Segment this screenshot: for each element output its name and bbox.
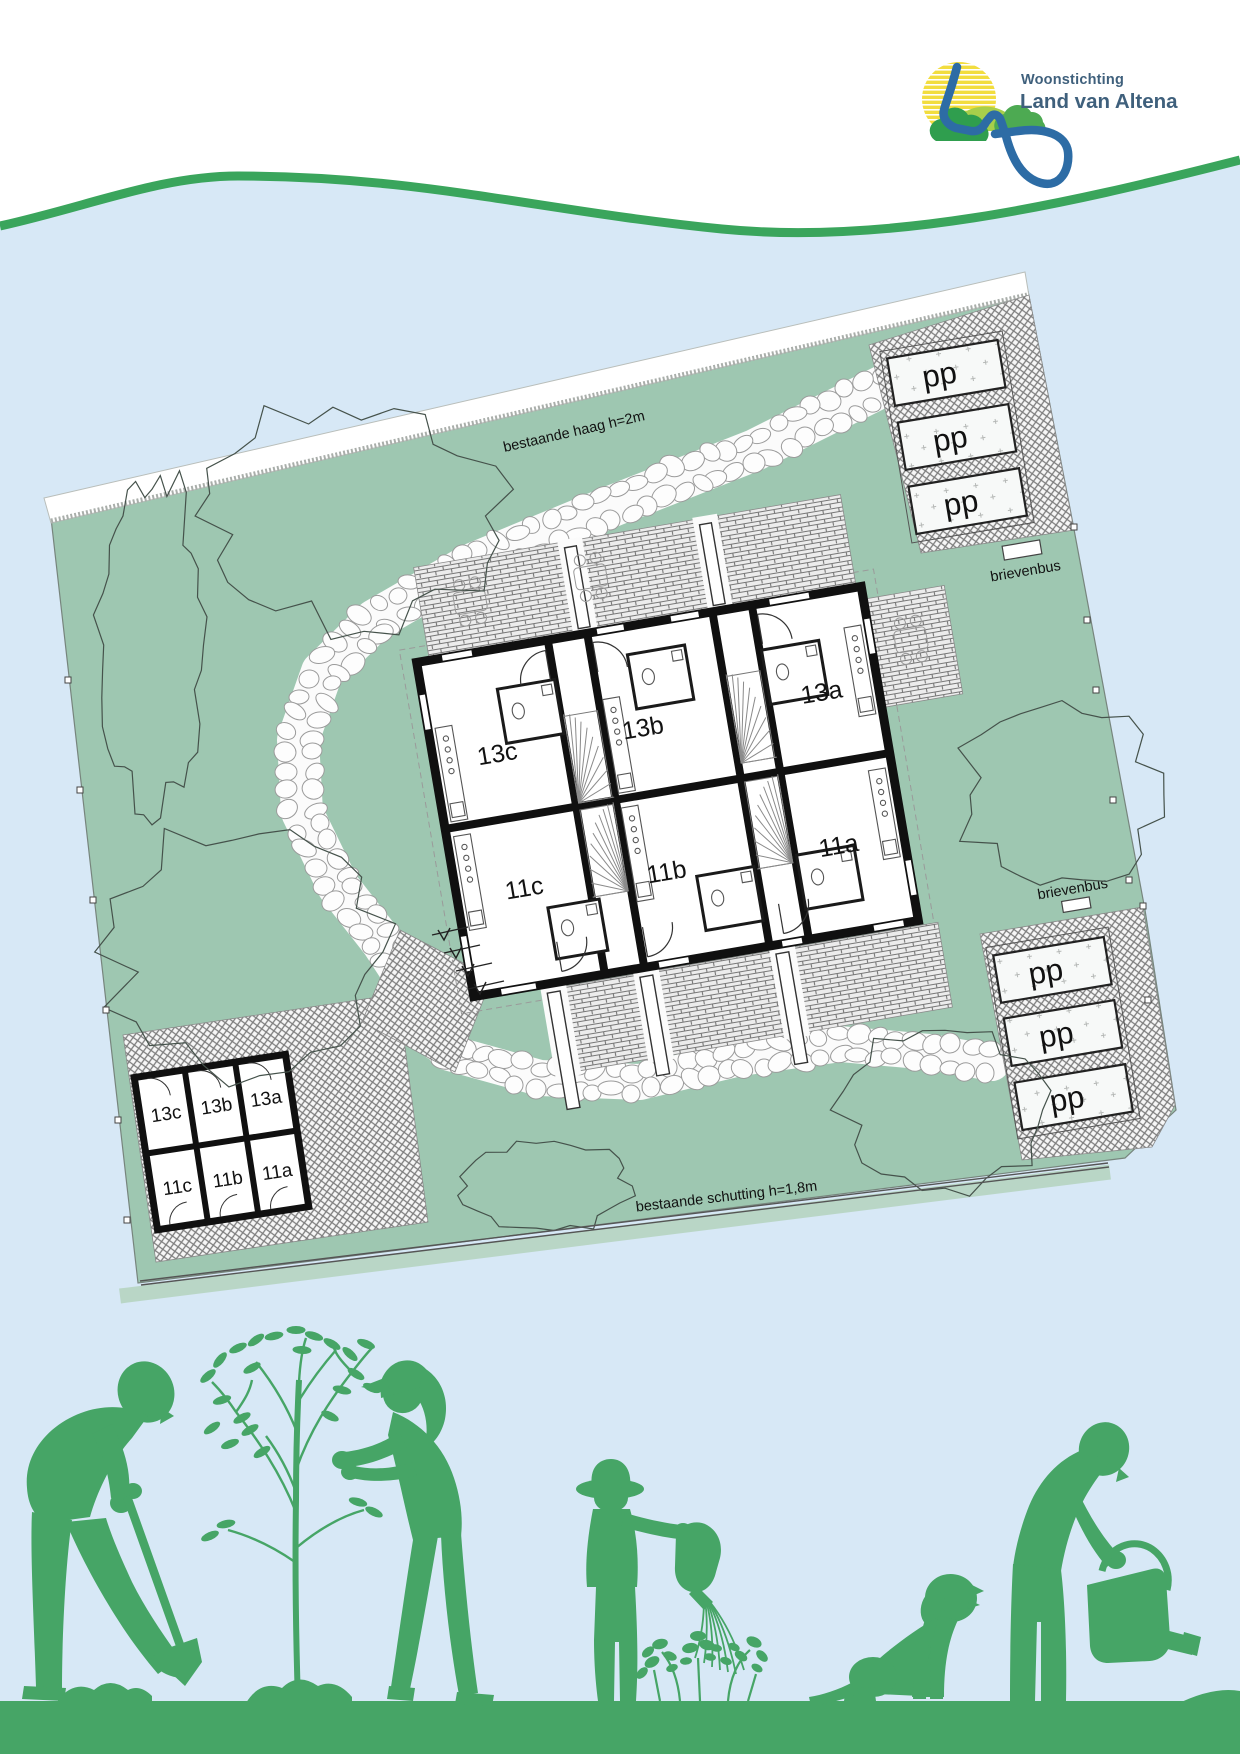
svg-text:Land van Altena: Land van Altena bbox=[1020, 90, 1178, 113]
svg-text:pp: pp bbox=[920, 354, 960, 394]
svg-text:Woonstichting: Woonstichting bbox=[1021, 72, 1124, 88]
svg-text:pp: pp bbox=[941, 483, 981, 523]
svg-text:pp: pp bbox=[1026, 951, 1066, 991]
svg-text:11c: 11c bbox=[161, 1175, 193, 1200]
svg-text:pp: pp bbox=[930, 419, 970, 459]
svg-text:pp: pp bbox=[1036, 1015, 1076, 1055]
svg-text:pp: pp bbox=[1047, 1079, 1087, 1119]
